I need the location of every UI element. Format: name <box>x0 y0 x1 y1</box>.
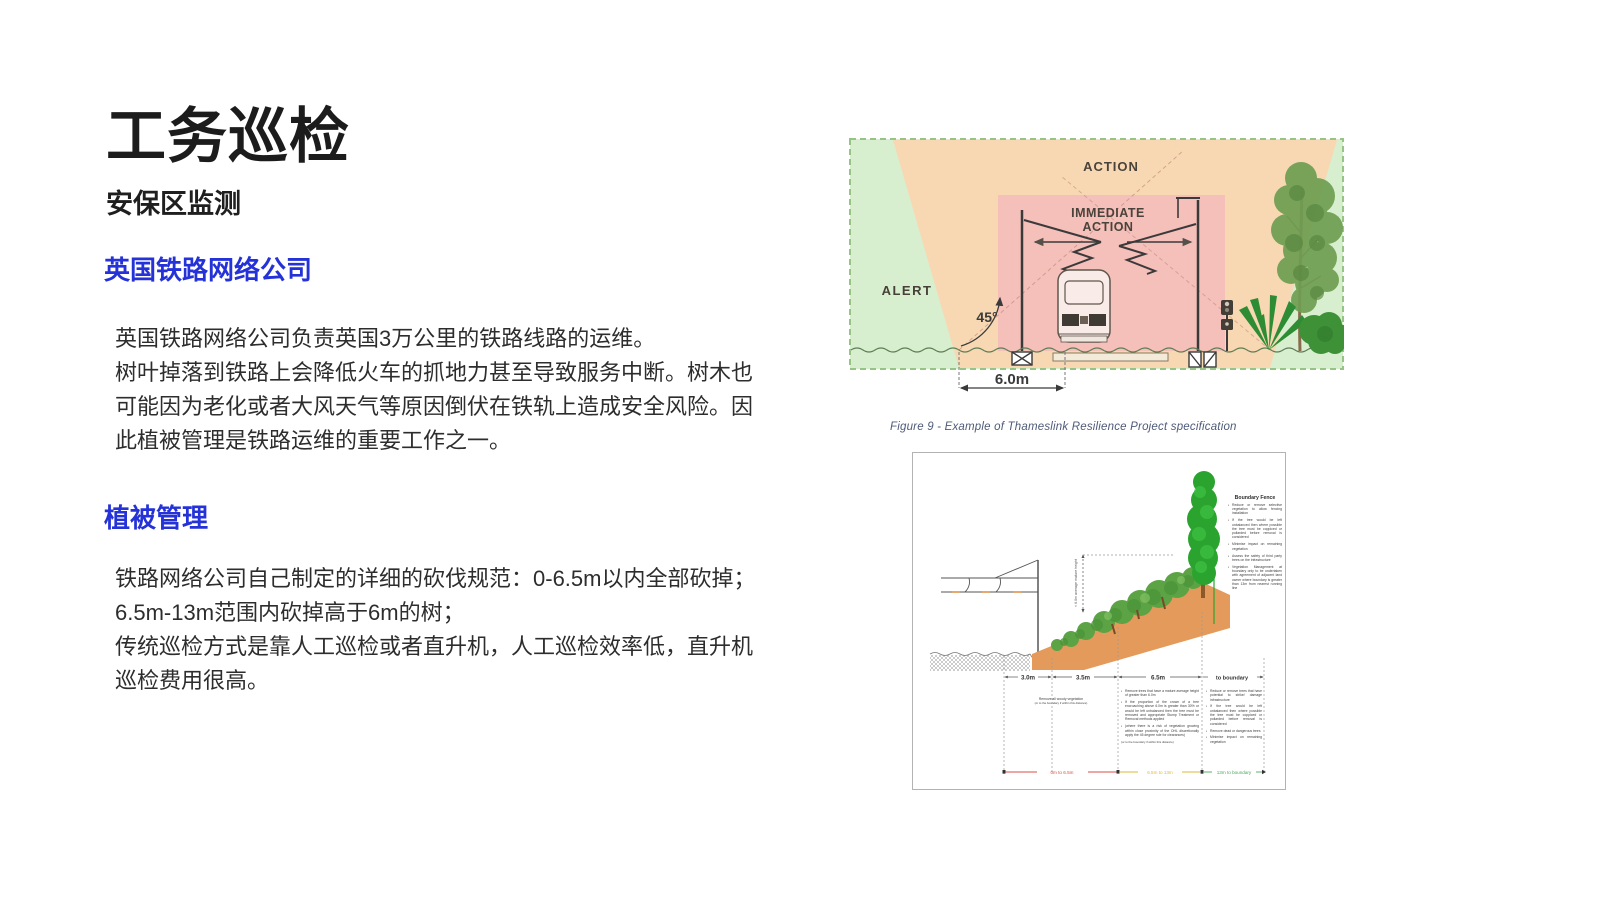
paragraph-network-rail: 英国铁路网络公司负责英国3万公里的铁路线路的运维。 树叶掉落到铁路上会降低火车的… <box>115 322 753 458</box>
page-subtitle: 安保区监测 <box>106 182 241 221</box>
height-dimension-label: < 6.0m average mature height <box>1074 559 1078 607</box>
rule-bullet: ▪Minimise impact on remaining vegetation <box>1228 542 1282 551</box>
rule-text: (where there is a risk of vegetation gro… <box>1125 724 1199 737</box>
rule-bullet: ▪If the proportion of the crown of a tre… <box>1121 700 1199 721</box>
rule-bullet: ▪Vegetation Management at boundary only … <box>1228 565 1282 591</box>
paragraph-vegetation: 铁路网络公司自己制定的详细的砍伐规范：0-6.5m以内全部砍掉； 6.5m-13… <box>115 562 755 698</box>
rule-bullet: ▪If the tree would be left unbalanced th… <box>1228 518 1282 539</box>
paragraph-line: 树叶掉落到铁路上会降低火车的抓地力甚至导致服务中断。树木也 <box>115 356 753 390</box>
paragraph-line: 巡检费用很高。 <box>115 664 755 698</box>
rule-bullet: ▪Minimise impact on remaining vegetation <box>1206 735 1262 744</box>
train-front <box>1058 270 1110 342</box>
track-slab <box>1053 353 1168 361</box>
boundary-fence-heading: Boundary Fence <box>1228 496 1282 500</box>
boundary-fence-notes: Boundary Fence ▪Reduce or remove selecti… <box>1228 496 1282 593</box>
paragraph-line: 6.5m-13m范围内砍掉高于6m的树； <box>115 596 755 630</box>
clearance-zones-figure: 45° 6.0m ACTION IMMEDIATE ACTION ALERT <box>849 138 1344 396</box>
dim-6-5: 6.5m <box>1151 674 1166 681</box>
action-zone-label: ACTION <box>1083 159 1139 174</box>
rule-bullet: ▪Remove dead or dangerous trees <box>1206 729 1262 733</box>
angle-label: 45° <box>976 309 997 325</box>
rule-text: Assess the safety of third party trees o… <box>1232 554 1282 563</box>
boundary-column-rules: ▪Reduce or remove trees that have potent… <box>1206 689 1262 747</box>
immediate-action-label-2: ACTION <box>1083 220 1134 234</box>
mid-column-rules: ▪Remove trees that have a mature average… <box>1121 689 1199 744</box>
trackbed <box>930 655 1030 671</box>
slide: 工务巡检 安保区监测 英国铁路网络公司 英国铁路网络公司负责英国3万公里的铁路线… <box>0 0 1600 900</box>
rule-bullet: ▪Reduce or remove trees that have potent… <box>1206 689 1262 702</box>
vegetation-spec-figure: < 6.0m average mature height <box>912 452 1286 790</box>
paragraph-line: 传统巡检方式是靠人工巡检或者直升机，人工巡检效率低，直升机 <box>115 630 755 664</box>
rule-text: If the tree would be left unbalanced the… <box>1232 518 1282 539</box>
rule-text: Remove dead or dangerous trees <box>1210 729 1261 733</box>
rule-bullet: ▪Remove trees that have a mature average… <box>1121 689 1199 698</box>
immediate-action-label-1: IMMEDIATE <box>1071 206 1145 220</box>
rule-bullet: ▪(where there is a risk of vegetation gr… <box>1121 724 1199 737</box>
rule-bullet: ▪Assess the safety of third party trees … <box>1228 554 1282 563</box>
rule-text: Minimise impact on remaining vegetation <box>1232 542 1282 551</box>
dim-3-0: 3.0m <box>1021 674 1036 681</box>
paragraph-line: 此植被管理是铁路运维的重要工作之一。 <box>115 424 753 458</box>
alert-zone-label: ALERT <box>882 283 933 298</box>
zone-label-yellow: 6.5m to 13m <box>1147 770 1173 775</box>
zone-label-red: 0m to 6.5m <box>1051 770 1074 775</box>
figure-caption: Figure 9 - Example of Thameslink Resilie… <box>890 421 1237 433</box>
rule-bullet: ▪If the tree would be left unbalanced th… <box>1206 704 1262 725</box>
rule-text: If the tree would be left unbalanced the… <box>1210 704 1262 725</box>
rule-note: (or to the boundary if within this dista… <box>1121 740 1199 744</box>
page-title: 工务巡检 <box>106 88 350 175</box>
rule-text: Minimise impact on remaining vegetation <box>1210 735 1262 744</box>
dim-3-5: 3.5m <box>1076 674 1091 681</box>
rule-bullet: ▪Reduce or remove selective vegetation t… <box>1228 503 1282 516</box>
left-column-note: Remove all woody vegetation (or to the b… <box>1008 697 1114 706</box>
clearance-zones-svg: 45° 6.0m ACTION IMMEDIATE ACTION ALERT <box>849 138 1344 396</box>
rule-text: Reduce or remove trees that have potenti… <box>1210 689 1262 702</box>
note-line: (or to the boundary if within this dista… <box>1008 701 1114 705</box>
rule-text: Remove trees that have a mature average … <box>1125 689 1199 698</box>
section-heading-vegetation: 植被管理 <box>104 498 208 535</box>
paragraph-line: 可能因为老化或者大风天气等原因倒伏在铁轨上造成安全风险。因 <box>115 390 753 424</box>
paragraph-line: 铁路网络公司自己制定的详细的砍伐规范：0-6.5m以内全部砍掉； <box>115 562 755 596</box>
rule-text: If the proportion of the crown of a tree… <box>1125 700 1199 721</box>
dimension-label: 6.0m <box>995 371 1029 388</box>
rule-text: Reduce or remove selective vegetation to… <box>1232 503 1282 516</box>
rule-text: Vegetation Management at boundary only t… <box>1232 565 1282 591</box>
section-heading-network-rail: 英国铁路网络公司 <box>104 250 312 287</box>
dim-boundary: to boundary <box>1216 675 1249 681</box>
paragraph-line: 英国铁路网络公司负责英国3万公里的铁路线路的运维。 <box>115 322 753 356</box>
zone-label-green: 13m to boundary <box>1217 770 1252 775</box>
